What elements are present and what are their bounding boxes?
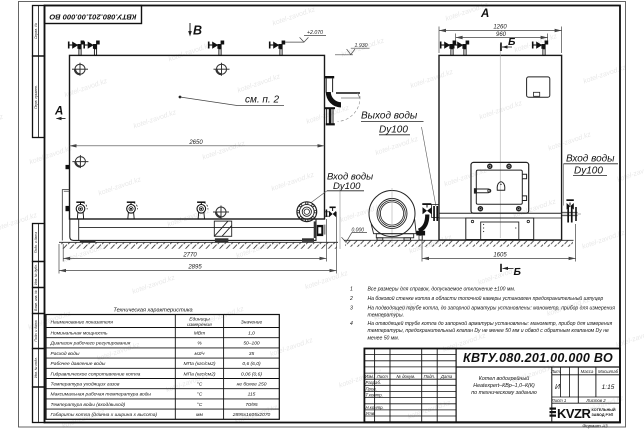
svg-text:35: 35 xyxy=(249,351,255,357)
svg-text:Габариты котла (длинна х ширин: Габариты котла (длинна х ширина х высота… xyxy=(51,412,158,418)
svg-text:Дата: Дата xyxy=(440,374,453,379)
svg-text:КОТЕЛЬНЫЙ: КОТЕЛЬНЫЙ xyxy=(592,408,616,412)
svg-text:по техническому заданию: по техническому заданию xyxy=(471,390,536,396)
svg-text:2650: 2650 xyxy=(188,140,203,146)
svg-text:1.930: 1.930 xyxy=(355,43,368,49)
svg-text:KVZR: KVZR xyxy=(557,406,592,421)
svg-text:Максимальная рабочая температу: Максимальная рабочая температура воды xyxy=(51,392,152,398)
svg-text:Подп. и дата: Подп. и дата xyxy=(34,232,38,253)
svg-text:Листов 2: Листов 2 xyxy=(585,398,606,403)
svg-text:Наименование показателя: Наименование показателя xyxy=(51,319,114,325)
svg-text:Масса: Масса xyxy=(581,369,594,374)
svg-text:0.000: 0.000 xyxy=(352,227,365,233)
svg-text:МВт: МВт xyxy=(194,331,205,337)
svg-text:Н.контр.: Н.контр. xyxy=(366,405,384,410)
svg-text:Б: Б xyxy=(514,266,522,278)
svg-text:№ докум.: № докум. xyxy=(396,374,415,379)
svg-text:70/95: 70/95 xyxy=(245,402,258,408)
svg-text:4: 4 xyxy=(350,321,353,327)
svg-text:Формат А3: Формат А3 xyxy=(582,424,608,429)
svg-text:На боковой стенке котла в обла: На боковой стенке котла в области топочн… xyxy=(368,295,604,302)
svg-text:Подп.: Подп. xyxy=(424,374,435,379)
svg-text:КВТУ.080.201.00.000 ВО: КВТУ.080.201.00.000 ВО xyxy=(49,13,136,22)
svg-text:Масштаб: Масштаб xyxy=(598,369,619,374)
svg-text:Пров.: Пров. xyxy=(366,386,377,391)
svg-text:Dy100: Dy100 xyxy=(379,125,408,136)
svg-text:мм: мм xyxy=(196,413,203,418)
svg-text:Б: Б xyxy=(508,36,516,48)
svg-text:1260: 1260 xyxy=(493,25,507,31)
svg-text:Все размеры для справок, допус: Все размеры для справок, допускаемое отк… xyxy=(368,286,516,292)
svg-text:Выход воды: Выход воды xyxy=(361,111,418,122)
svg-text:Лист: Лист xyxy=(376,374,388,379)
svg-text:КВТУ.080.201.00.000 ВО: КВТУ.080.201.00.000 ВО xyxy=(463,351,613,365)
svg-text:1,0: 1,0 xyxy=(248,331,255,337)
svg-text:Техническая характеристика: Техническая характеристика xyxy=(113,308,192,314)
svg-text:Изм.: Изм. xyxy=(365,374,374,379)
svg-text:960: 960 xyxy=(496,32,507,38)
svg-text:1: 1 xyxy=(350,286,353,292)
svg-text:2895: 2895 xyxy=(187,264,202,270)
svg-text:Подп. и дата: Подп. и дата xyxy=(34,320,38,341)
svg-text:Диапазон рабочего регулировани: Диапазон рабочего регулирования xyxy=(50,341,131,347)
svg-text:Инв. № дубл.: Инв. № дубл. xyxy=(34,264,38,285)
svg-text:1:15: 1:15 xyxy=(602,384,615,391)
svg-text:Инв. № подл.: Инв. № подл. xyxy=(34,357,38,378)
svg-text:МПа (кгс/см2): МПа (кгс/см2) xyxy=(184,371,216,377)
svg-text:см. п. 2: см. п. 2 xyxy=(245,95,279,106)
svg-text:Температура уходящих газов: Температура уходящих газов xyxy=(51,382,120,388)
svg-text:ЗАВОД РЭП: ЗАВОД РЭП xyxy=(592,413,614,417)
svg-text:0,06 (0,6): 0,06 (0,6) xyxy=(241,371,262,377)
svg-text:не более 250: не более 250 xyxy=(237,382,267,388)
svg-text:Котел водогрейный: Котел водогрейный xyxy=(479,375,529,382)
svg-text:Heatexpert–КВр–1,0–К(К): Heatexpert–КВр–1,0–К(К) xyxy=(473,383,535,389)
svg-text:+2.070: +2.070 xyxy=(307,30,323,36)
svg-text:Значение: Значение xyxy=(241,319,263,325)
svg-text:менее 50 мм.: менее 50 мм. xyxy=(368,335,400,341)
svg-text:3: 3 xyxy=(350,306,353,312)
svg-text:0,6 (6,0): 0,6 (6,0) xyxy=(242,361,261,367)
svg-text:Утв.: Утв. xyxy=(366,411,376,416)
svg-text:Т.контр.: Т.контр. xyxy=(366,393,383,398)
svg-text:м3/ч: м3/ч xyxy=(195,351,205,357)
svg-text:температуры.: температуры. xyxy=(368,313,405,319)
svg-text:МПа (кгс/см2): МПа (кгс/см2) xyxy=(184,361,216,367)
svg-text:°С: °С xyxy=(197,392,203,398)
svg-text:Лист 1: Лист 1 xyxy=(551,398,567,403)
svg-text:2895х1605х2070: 2895х1605х2070 xyxy=(232,412,271,418)
svg-text:температуры, предохранительный: температуры, предохранительный клапан Dy… xyxy=(368,327,610,334)
svg-text:Рабочее давление воды: Рабочее давление воды xyxy=(51,361,106,367)
svg-text:Вход воды: Вход воды xyxy=(566,154,615,165)
svg-text:Dy100: Dy100 xyxy=(333,181,361,192)
svg-text:На подводящей трубе котла, д: На подводящей трубе котла, до запорной а… xyxy=(368,305,616,312)
svg-text:50–100: 50–100 xyxy=(243,341,260,347)
svg-text:Перв. примен.: Перв. примен. xyxy=(34,85,38,109)
svg-text:115: 115 xyxy=(248,392,256,398)
svg-text:Температура воды (вход/выход): Температура воды (вход/выход) xyxy=(51,402,126,408)
svg-text:Справ. №: Справ. № xyxy=(34,23,38,39)
svg-text:Единицы: Единицы xyxy=(189,316,210,322)
svg-text:°С: °С xyxy=(197,382,203,388)
svg-text:Расход воды: Расход воды xyxy=(51,351,80,357)
svg-text:Номинальная мощность: Номинальная мощность xyxy=(51,331,109,337)
svg-text:1605: 1605 xyxy=(493,252,507,258)
svg-text:измерения: измерения xyxy=(187,323,212,328)
svg-text:На отводящей трубе котла до за: На отводящей трубе котла до запорной арм… xyxy=(368,320,613,327)
svg-text:°С: °С xyxy=(197,402,203,408)
svg-text:%: % xyxy=(197,341,202,347)
svg-text:А: А xyxy=(480,8,489,20)
svg-text:А: А xyxy=(54,106,63,118)
svg-text:Разраб.: Разраб. xyxy=(366,380,382,385)
svg-text:Dy100: Dy100 xyxy=(574,166,603,177)
svg-text:Гидравлическое сопротивление к: Гидравлическое сопротивление котла xyxy=(51,371,141,377)
svg-text:В: В xyxy=(193,24,202,38)
svg-text:2770: 2770 xyxy=(182,252,197,258)
svg-text:Лит.: Лит. xyxy=(550,369,561,374)
svg-text:2: 2 xyxy=(349,296,353,302)
svg-text:Взам. инв. №: Взам. инв. № xyxy=(34,290,38,311)
